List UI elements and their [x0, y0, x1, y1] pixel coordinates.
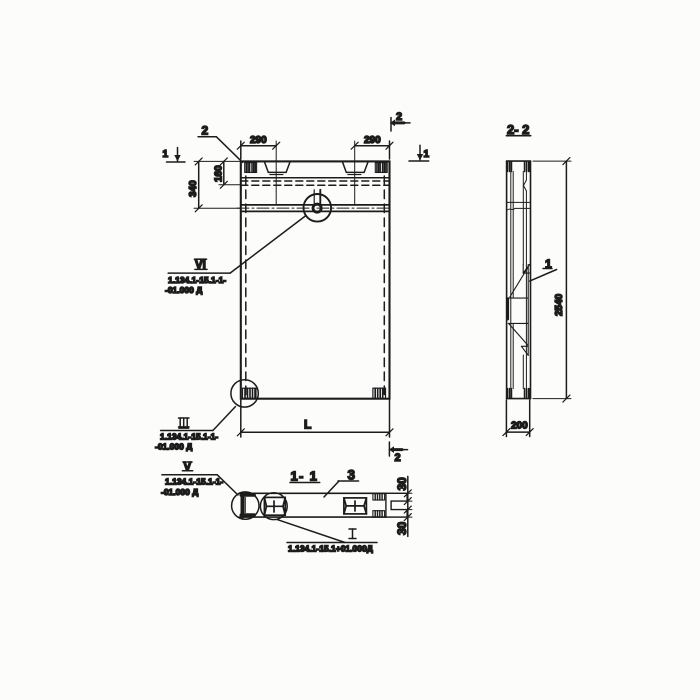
svg-text:1.134.1-15.1-1-: 1.134.1-15.1-1-	[168, 275, 226, 285]
svg-text:30: 30	[395, 521, 409, 535]
svg-text:2: 2	[396, 111, 402, 123]
svg-text:1.134.1-15.1-1-: 1.134.1-15.1-1-	[160, 432, 218, 442]
svg-text:L: L	[304, 418, 311, 432]
svg-text:340: 340	[188, 180, 199, 197]
svg-text:30: 30	[395, 477, 409, 491]
svg-text:1.134.1-15.1+01.000Д: 1.134.1-15.1+01.000Д	[288, 544, 373, 554]
svg-text:1.134.1-15.1-1-: 1.134.1-15.1-1-	[165, 477, 223, 487]
svg-text:2: 2	[395, 452, 401, 464]
svg-text:2540: 2540	[554, 293, 565, 316]
svg-text:2- 2: 2- 2	[507, 122, 529, 137]
svg-text:V: V	[184, 461, 192, 473]
svg-text:160: 160	[214, 165, 225, 182]
svg-text:1- 1: 1- 1	[291, 469, 319, 484]
svg-text:1: 1	[424, 149, 430, 160]
svg-text:1: 1	[163, 149, 169, 160]
svg-text:290: 290	[364, 135, 381, 146]
svg-text:290: 290	[250, 135, 267, 146]
svg-text:-01.000 Д: -01.000 Д	[161, 487, 198, 497]
svg-text:-01.000 Д: -01.000 Д	[155, 442, 192, 452]
svg-text:1: 1	[545, 257, 552, 271]
svg-text:2: 2	[202, 124, 209, 138]
svg-text:3: 3	[348, 468, 356, 483]
svg-text:200: 200	[511, 421, 528, 432]
svg-text:-01.000 Д: -01.000 Д	[165, 285, 202, 295]
svg-text:VI: VI	[195, 259, 206, 271]
